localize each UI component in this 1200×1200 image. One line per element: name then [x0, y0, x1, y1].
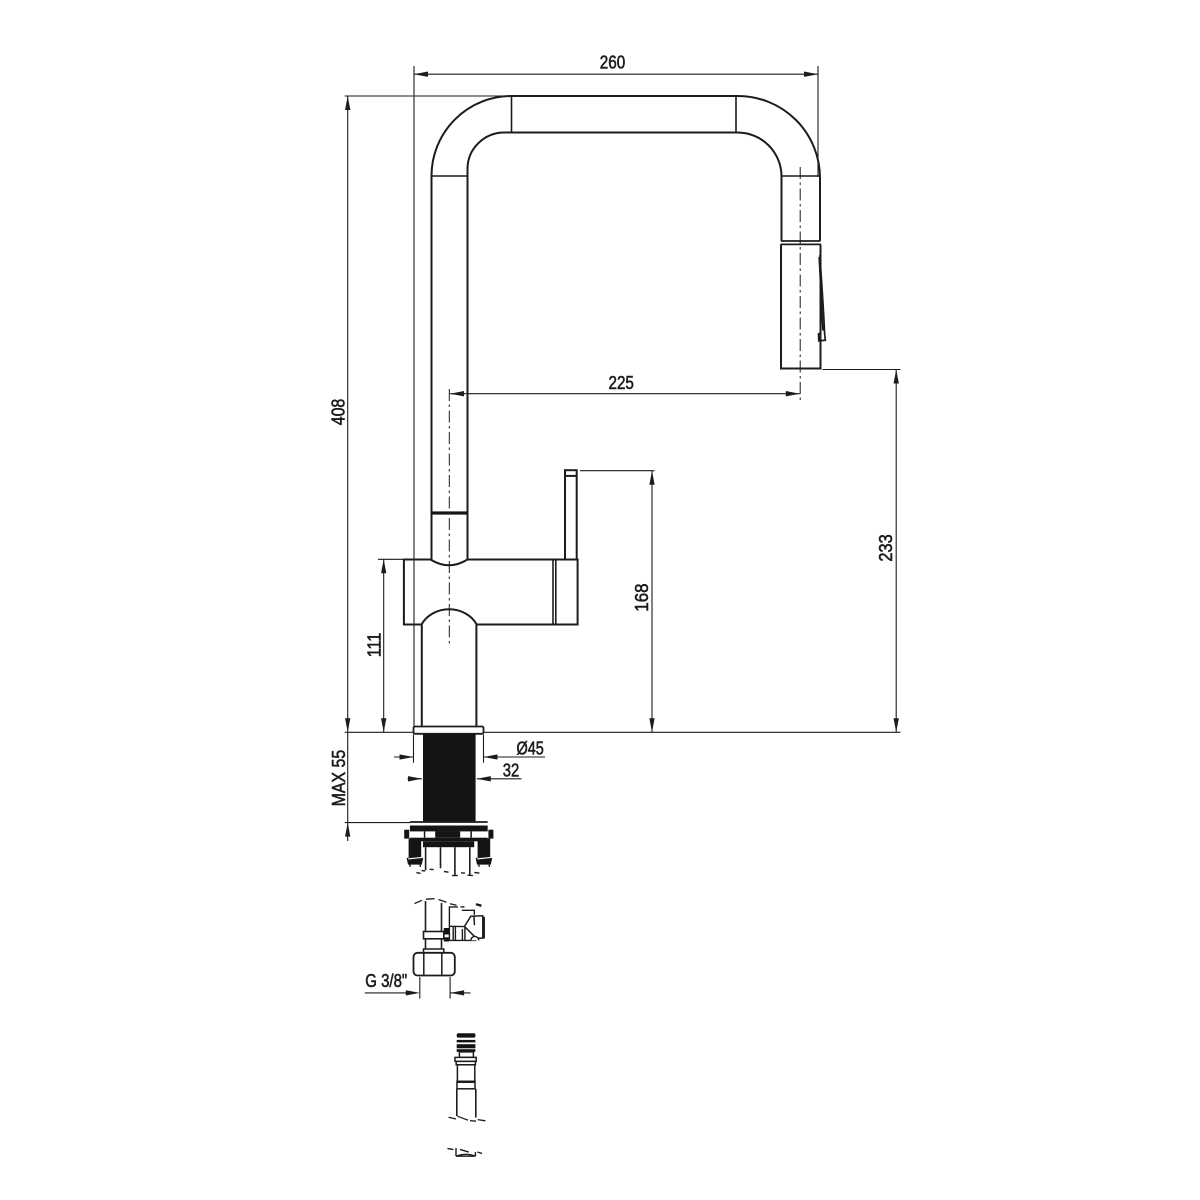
svg-text:233: 233: [875, 534, 896, 561]
svg-text:168: 168: [631, 584, 652, 612]
svg-text:225: 225: [609, 372, 634, 393]
svg-text:260: 260: [600, 51, 625, 72]
svg-text:408: 408: [327, 399, 348, 426]
svg-text:111: 111: [363, 633, 384, 658]
svg-text:32: 32: [503, 759, 520, 780]
svg-text:MAX 55: MAX 55: [328, 750, 349, 807]
svg-text:Ø45: Ø45: [517, 738, 544, 759]
svg-text:G 3/8": G 3/8": [365, 970, 407, 991]
